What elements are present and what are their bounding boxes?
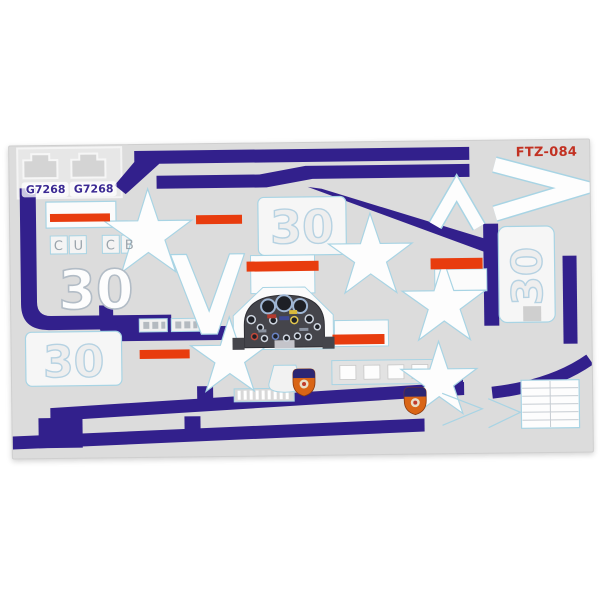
red-stripe <box>332 334 384 345</box>
numeral-30-vertical: 30 <box>502 247 552 306</box>
panel-gauge <box>261 299 275 313</box>
panel-gauge <box>261 335 267 341</box>
segment-square <box>340 365 356 379</box>
panel-side <box>232 338 244 350</box>
red-stripe <box>50 213 110 222</box>
panel-gauge <box>291 317 298 324</box>
code-letter: B <box>125 238 134 253</box>
panel-gauge <box>283 335 289 341</box>
numeral-30-boxed: 30 <box>270 200 335 255</box>
bar-right-vertical-2 <box>562 256 577 344</box>
panel-gauge <box>272 333 278 339</box>
segment-square <box>388 365 404 379</box>
tab-gray <box>523 306 541 321</box>
segment-square <box>364 365 380 379</box>
numeral-30-boxed: 30 <box>43 336 105 388</box>
chevron-thin-outline <box>488 398 520 427</box>
walkway-block <box>38 418 82 449</box>
panel-gauge <box>305 315 313 323</box>
chevron-up-fill <box>435 188 479 228</box>
panel-indicator <box>279 316 289 320</box>
panel-gauge <box>251 334 257 340</box>
band-top-zigzag-lower <box>156 164 469 189</box>
red-stripe <box>247 261 319 272</box>
panel-gauge <box>276 295 292 311</box>
panel-indicator <box>267 314 276 318</box>
panel-indicator <box>258 329 266 332</box>
badge-shield-chief <box>404 387 426 396</box>
product-photo: 30303030CUCB FTZ-084 G7268 G7268 <box>0 0 600 600</box>
numeral-30-large: 30 <box>58 258 134 322</box>
serial-placard: G7268 <box>23 183 69 197</box>
chevron-right-fill <box>494 164 582 214</box>
panel-indicator <box>299 328 308 331</box>
panel-gauge <box>305 334 311 340</box>
code-letter: C <box>106 238 115 253</box>
badge-shield-chief <box>293 369 315 378</box>
panel-gauge <box>314 324 320 330</box>
red-stripe <box>140 349 190 359</box>
red-stripe <box>431 258 483 270</box>
sheet-code: FTZ-084 <box>516 145 578 161</box>
decal-sheet: 30303030CUCB FTZ-084 G7268 G7268 <box>8 138 594 459</box>
red-stripe <box>196 215 242 225</box>
panel-gauge <box>294 333 300 339</box>
code-letter: U <box>73 239 83 254</box>
serial-placard: G7268 <box>71 182 117 196</box>
panel-side <box>322 337 334 349</box>
code-letter: C <box>54 239 63 254</box>
walkway-tab <box>184 416 200 429</box>
panel-indicator <box>289 310 297 314</box>
panel-gauge <box>247 316 255 324</box>
